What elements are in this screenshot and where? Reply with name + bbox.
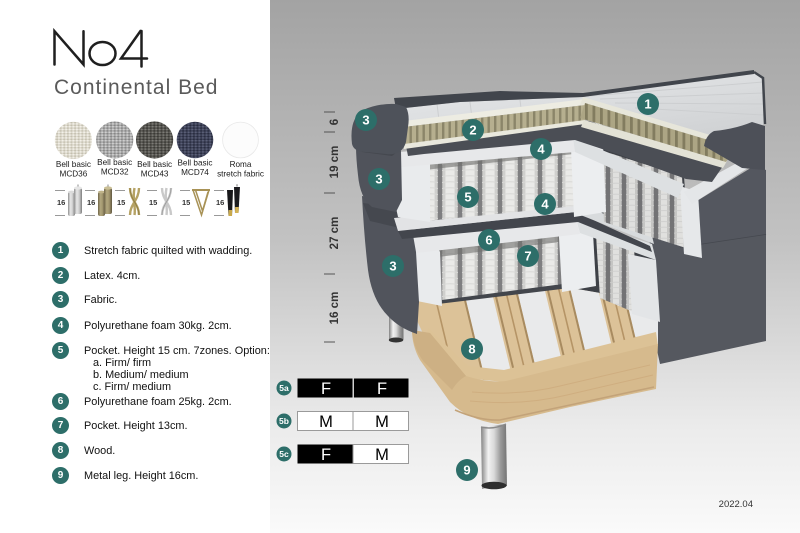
svg-text:F: F [321,380,331,398]
svg-text:3: 3 [362,113,369,128]
svg-text:5: 5 [464,190,471,205]
svg-text:5c: 5c [279,449,289,459]
svg-text:4: 4 [541,197,549,212]
svg-text:4: 4 [537,142,545,157]
svg-text:5a: 5a [279,383,289,393]
svg-text:6: 6 [329,119,341,125]
svg-text:6: 6 [485,233,492,248]
svg-text:M: M [375,413,389,431]
svg-text:7: 7 [524,249,531,264]
svg-text:2: 2 [469,123,476,138]
svg-text:M: M [375,446,389,464]
svg-text:8: 8 [468,342,475,357]
svg-text:F: F [321,446,331,464]
svg-text:5b: 5b [279,416,289,426]
svg-text:3: 3 [389,259,396,274]
svg-text:27 cm: 27 cm [329,217,341,250]
svg-text:19 cm: 19 cm [329,146,341,179]
svg-text:9: 9 [463,463,470,478]
svg-text:16 cm: 16 cm [329,292,341,325]
svg-text:2022.04: 2022.04 [719,499,753,510]
svg-text:M: M [319,413,333,431]
svg-text:F: F [377,380,387,398]
svg-text:3: 3 [375,172,382,187]
svg-text:1: 1 [644,97,651,112]
